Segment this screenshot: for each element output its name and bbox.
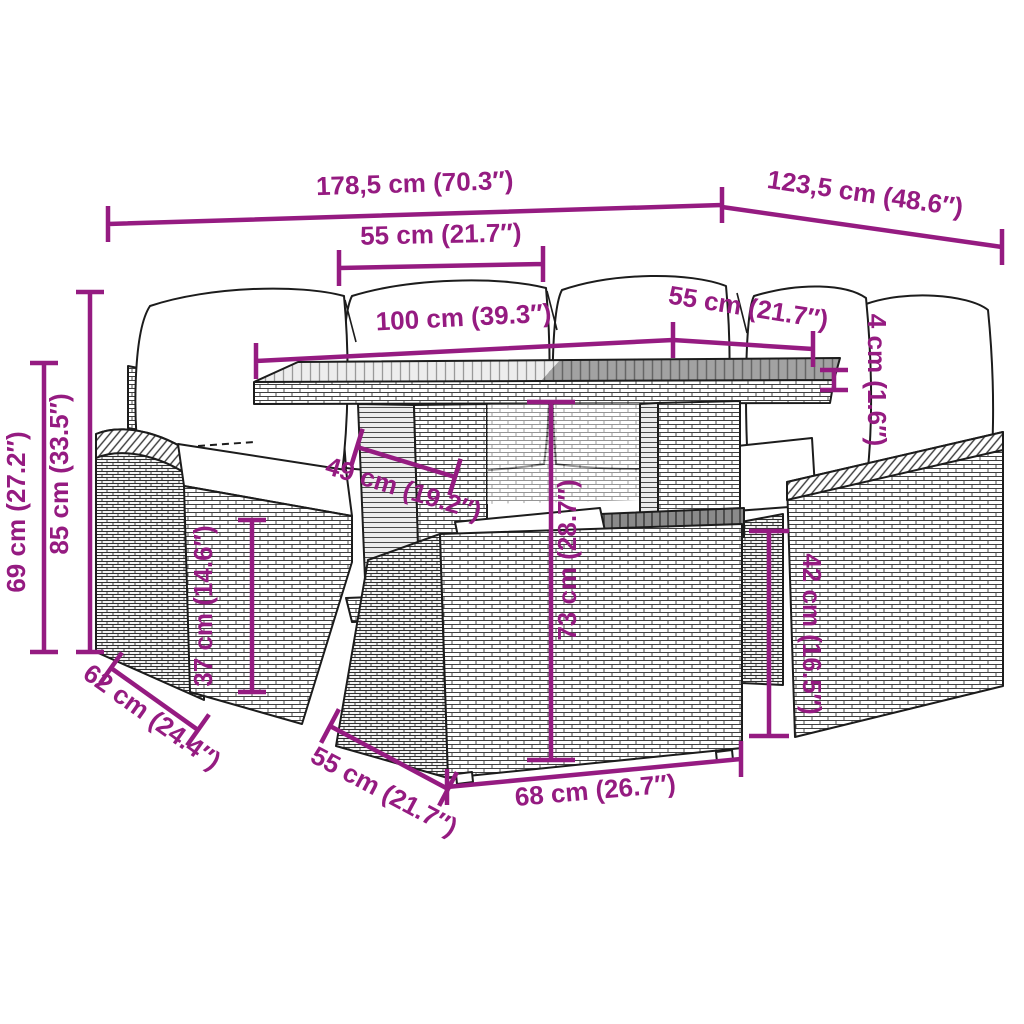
dim-label-left-seat-width: 55 cm (21.7″) — [360, 217, 522, 250]
diagram-canvas: 178,5 cm (70.3″) 123,5 cm (48.6″) 55 cm … — [0, 0, 1024, 1024]
dim-label-ottoman-height: 42 cm (16.5″) — [797, 553, 827, 714]
dim-label-overall-width: 178,5 cm (70.3″) — [316, 165, 514, 201]
dimension-diagram: 178,5 cm (70.3″) 123,5 cm (48.6″) 55 cm … — [0, 0, 1024, 1024]
dim-label-tabletop-thickness: 4 cm (1.6″) — [862, 314, 892, 446]
corner-seat-base — [741, 514, 783, 685]
dim-overall-depth: 123,5 cm (48.6″) — [722, 164, 1002, 265]
dim-label-seat-height: 37 cm (14.6″) — [188, 525, 218, 686]
dim-left-seat-width: 55 cm (21.7″) — [339, 217, 543, 286]
dim-label-frame-height: 69 cm (27.2″) — [1, 431, 31, 592]
ottoman-side-face — [336, 534, 448, 778]
ottoman-front-face — [440, 524, 742, 778]
dim-label-ottoman-width: 68 cm (26.7″) — [514, 768, 677, 812]
dim-label-table-height: 73 cm (28.7″) — [552, 479, 582, 640]
tabletop-slats-left — [254, 360, 560, 382]
tabletop-slats-right — [540, 358, 840, 382]
dim-label-overall-depth: 123,5 cm (48.6″) — [765, 164, 965, 222]
dim-label-total-height: 85 cm (33.5″) — [44, 393, 74, 554]
